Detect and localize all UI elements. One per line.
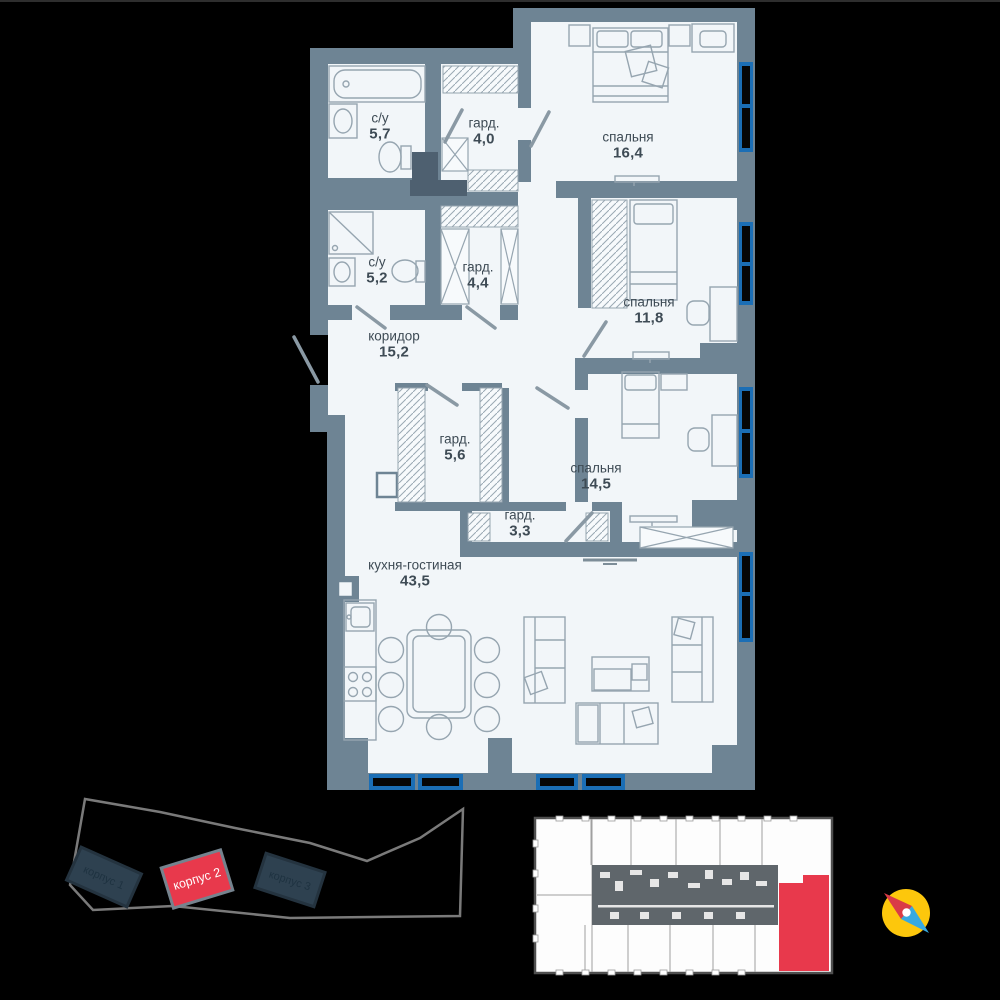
screenshot-root: корпус 1 корпус 2 корпус 3 (0, 0, 1000, 1000)
highlighted-unit[interactable] (779, 875, 829, 971)
window (739, 387, 753, 478)
site-building-1[interactable]: корпус 1 (67, 847, 142, 907)
entrance-door (294, 337, 318, 382)
site-building-2[interactable]: корпус 2 (161, 850, 233, 908)
compass-icon (882, 889, 930, 937)
window (582, 774, 625, 790)
floorplan-canvas: корпус 1 корпус 2 корпус 3 (0, 0, 1000, 1000)
window (418, 774, 463, 790)
top-edge-line (0, 0, 1000, 2)
window (739, 62, 753, 152)
floor-overview (533, 816, 832, 975)
window (739, 552, 753, 642)
apartment-floor (328, 22, 737, 773)
site-building-3[interactable]: корпус 3 (255, 853, 325, 906)
window (536, 774, 578, 790)
site-plan: корпус 1 корпус 2 корпус 3 (67, 799, 463, 918)
floor-core (592, 865, 778, 925)
window (369, 774, 415, 790)
window (739, 222, 753, 305)
